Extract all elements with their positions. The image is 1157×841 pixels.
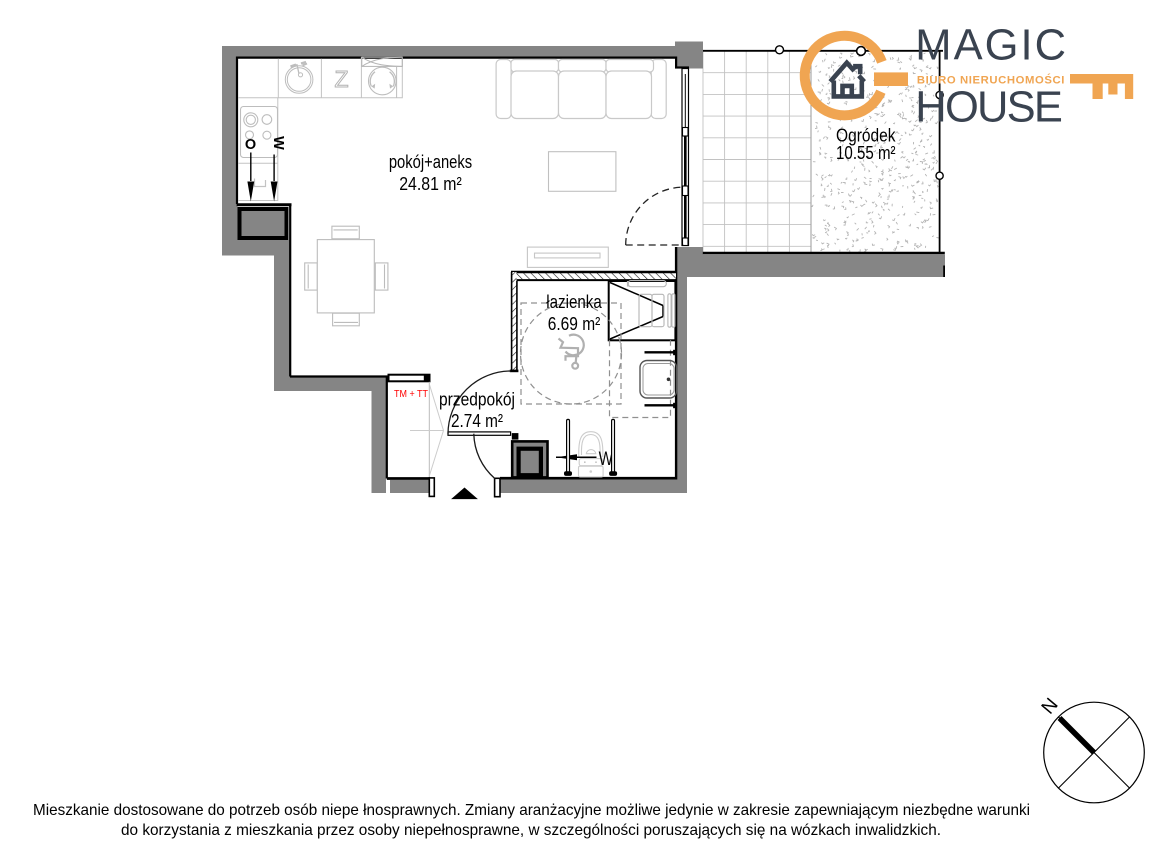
svg-text:24.81 m²: 24.81 m² (399, 173, 462, 194)
svg-text:Z: Z (334, 66, 348, 92)
svg-text:W: W (270, 136, 286, 150)
svg-text:HOUSE: HOUSE (915, 83, 1063, 131)
svg-text:Mieszkanie dostosowane do potr: Mieszkanie dostosowane do potrzeb osób n… (33, 802, 1030, 819)
svg-text:przedpokój: przedpokój (439, 389, 515, 410)
svg-text:10.55 m²: 10.55 m² (836, 142, 896, 163)
svg-text:W: W (599, 449, 614, 470)
svg-text:TM + TT: TM + TT (394, 388, 429, 400)
svg-text:pokój+aneks: pokój+aneks (389, 151, 472, 172)
svg-text:2.74 m²: 2.74 m² (451, 410, 503, 431)
svg-text:6.69 m²: 6.69 m² (548, 313, 601, 334)
svg-text:MAGIC: MAGIC (915, 22, 1066, 70)
svg-text:łazienka: łazienka (546, 291, 602, 312)
svg-text:do korzystania z mieszkania pr: do korzystania z mieszkania przez osoby … (121, 822, 941, 839)
svg-text:O: O (245, 137, 256, 153)
